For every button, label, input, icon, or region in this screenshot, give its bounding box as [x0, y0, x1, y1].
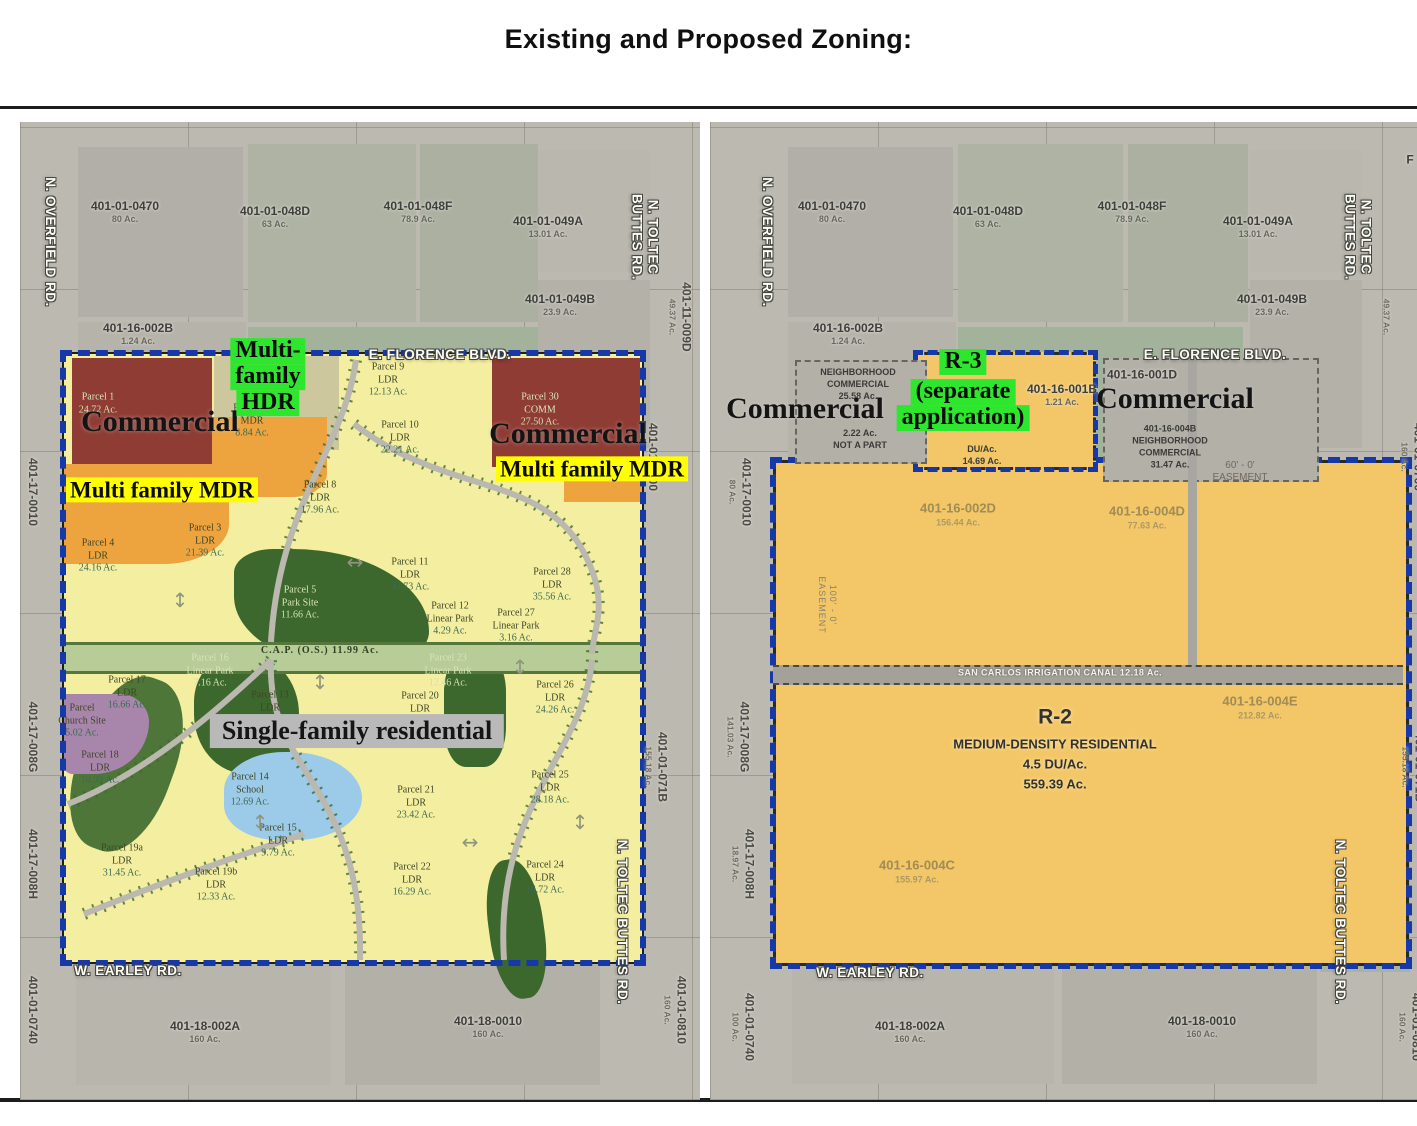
parcel-label: Parcel 9LDR12.13 Ac.: [369, 361, 408, 399]
map-labels-layer: 401-01-047080 Ac.401-01-048D63 Ac.401-01…: [20, 122, 700, 1100]
direction-arrow-icon: ↔: [347, 552, 364, 572]
parcel-label: Parcel 18LDR10.39 Ac.: [81, 749, 120, 787]
apn-label: 401-18-0010160 Ac.: [454, 1014, 522, 1040]
direction-arrow-icon: ↕: [172, 590, 189, 610]
apn-label: 401-16-002B1.24 Ac.: [103, 321, 173, 347]
parcel-label: Parcel 12Linear Park4.29 Ac.: [427, 600, 474, 638]
apn-label-vertical: 401-01-0700160 Ac.: [1399, 423, 1417, 491]
apn-label: 401-16-004E212.82 Ac.: [1222, 694, 1297, 723]
parcel-label: Parcel 23Linear Park12.46 Ac.: [425, 652, 472, 690]
apn-label-vertical: 401-17-0010: [24, 458, 40, 526]
parcel-label: Parcel 11LDR33.73 Ac.: [391, 556, 430, 594]
apn-label: 401-16-004D77.63 Ac.: [1109, 504, 1185, 533]
zoning-exhibit-page: Existing and Proposed Zoning:: [0, 0, 1417, 1126]
road-label: W. EARLEY RD.: [816, 965, 924, 981]
parcel-label: Parcel 17LDR16.66 Ac.: [108, 674, 147, 712]
apn-label: 401-16-002D156.44 Ac.: [920, 501, 996, 530]
zoning-overlay-label: Commercial: [489, 419, 647, 449]
easement-label: 100' - 0'EASEMENT: [816, 576, 838, 634]
apn-label: 401-01-047080 Ac.: [798, 199, 866, 225]
apn-label-vertical: 401-17-001080 Ac.: [727, 458, 754, 526]
existing-zoning-map: 401-01-047080 Ac.401-01-048D63 Ac.401-01…: [20, 122, 700, 1100]
apn-label: 401-01-049B23.9 Ac.: [1237, 292, 1307, 318]
page-title: Existing and Proposed Zoning:: [0, 24, 1417, 55]
road-label-vertical: N. TOLTECBUTTES RD.: [1342, 194, 1373, 280]
apn-label: 401-18-0010160 Ac.: [1168, 1014, 1236, 1040]
direction-arrow-icon: ↕: [572, 812, 589, 832]
parcel-label: Parcel 28LDR35.56 Ac.: [533, 566, 572, 604]
parcel-label: Parcel 16Linear Park7.16 Ac.: [187, 652, 234, 690]
parcel-label: Parcel 26LDR24.26 Ac.: [536, 679, 575, 717]
apn-label: 401-01-048D63 Ac.: [953, 204, 1023, 230]
apn-label-vertical: 401-17-008H: [24, 829, 40, 899]
commercial-parcel-label: 2.22 Ac.NOT A PART: [833, 427, 887, 451]
parcel-label: Parcel 14School12.69 Ac.: [231, 771, 270, 809]
zoning-overlay-label: Commercial: [1096, 384, 1254, 414]
apn-label-vertical: 401-17-008G: [24, 702, 40, 773]
highlight-yellow-label: Multi family MDR: [496, 456, 688, 481]
road-label-vertical: N. TOLTECBUTTES RD.: [629, 194, 660, 280]
map-labels-layer: 401-01-047080 Ac.401-01-048D63 Ac.401-01…: [710, 122, 1417, 1100]
parcel-label: Parcel 22LDR16.29 Ac.: [393, 861, 432, 899]
apn-label: 401-18-002A160 Ac.: [875, 1019, 945, 1045]
parcel-label: Parcel 20LDR: [401, 691, 439, 716]
apn-label: 401-16-001D: [1107, 368, 1177, 383]
highlight-green-label: R-3: [939, 349, 986, 375]
parcel-label: Parcel 10LDR22.21 Ac.: [381, 419, 420, 457]
apn-label-vertical: 401-01-0740100 Ac.: [730, 993, 757, 1061]
apn-label: 401-01-047080 Ac.: [91, 199, 159, 225]
apn-label: 401-16-001B1.21 Ac.: [1027, 382, 1097, 408]
highlight-green-label: Multi-familyHDR: [230, 338, 305, 416]
r2-zoning-label: R-2MEDIUM-DENSITY RESIDENTIAL4.5 DU/Ac.5…: [953, 702, 1156, 795]
apn-label: 401-01-049A13.01 Ac.: [1223, 214, 1293, 240]
residential-overlay-label: Single-family residential: [210, 714, 504, 748]
parcel-label: Parcel 8LDR17.96 Ac.: [301, 479, 340, 517]
apn-label: 401-16-004C155.97 Ac.: [879, 858, 955, 887]
apn-label: 401-01-049B23.9 Ac.: [525, 292, 595, 318]
road-label-vertical: N. TOLTEC BUTTES RD.: [614, 840, 630, 1005]
parcel-label: Parcel 19aLDR31.45 Ac.: [101, 842, 143, 880]
direction-arrow-icon: ↕: [252, 812, 269, 832]
parcel-label: Parcel 5Park Site11.66 Ac.: [281, 584, 319, 622]
road-label-vertical: N. TOLTEC BUTTES RD.: [1332, 840, 1348, 1005]
direction-arrow-icon: ↕: [512, 657, 529, 677]
apn-label-vertical: 401-01-0740: [24, 976, 40, 1044]
apn-label-vertical: 401-01-071B155.18 Ac.: [643, 732, 670, 802]
parcel-label: Parcel 25LDR28.18 Ac.: [531, 769, 570, 807]
apn-label: 401-18-002A160 Ac.: [170, 1019, 240, 1045]
road-label: W. EARLEY RD.: [74, 963, 182, 979]
canal-label: C.A.P. (O.S.) 11.99 Ac.: [261, 645, 379, 657]
apn-label-vertical: 401-01-0810160 Ac.: [662, 976, 689, 1044]
parcel-label: ParcelChurch Site5.02 Ac.: [58, 702, 106, 740]
apn-label-vertical: 401-01-0810160 Ac.: [1397, 993, 1417, 1061]
apn-label-vertical: 49.37 Ac.: [1380, 299, 1391, 336]
parcel-label: Parcel 3LDR21.39 Ac.: [186, 522, 225, 560]
apn-label: 401-16-002B1.24 Ac.: [813, 321, 883, 347]
canal-label: SAN CARLOS IRRIGATION CANAL 12.18 Ac.: [958, 668, 1162, 679]
commercial-parcel-label: 401-16-004BNEIGHBORHOODCOMMERCIAL31.47 A…: [1132, 423, 1208, 472]
apn-label-vertical: 401-17-008H18.97 Ac.: [730, 829, 757, 899]
parcel-label: Parcel 4LDR24.16 Ac.: [79, 537, 118, 575]
road-label: E. FLORENCE BLVD.: [1144, 347, 1287, 363]
direction-arrow-icon: ↕: [312, 672, 329, 692]
proposed-zoning-map: 401-01-047080 Ac.401-01-048D63 Ac.401-01…: [710, 122, 1417, 1100]
top-divider-line: [0, 106, 1417, 109]
highlight-green-label: (separateapplication): [897, 379, 1030, 431]
apn-label: 401-01-048F78.9 Ac.: [384, 199, 453, 225]
highlight-yellow-label: Multi family MDR: [66, 477, 258, 502]
parcel-label: Parcel 27Linear Park3.16 Ac.: [493, 607, 540, 645]
apn-label: 401-01-048D63 Ac.: [240, 204, 310, 230]
apn-label: 401-01-049A13.01 Ac.: [513, 214, 583, 240]
apn-label: 401-01-048F78.9 Ac.: [1098, 199, 1167, 225]
direction-arrow-icon: ↔: [462, 832, 479, 852]
zoning-overlay-label: Commercial: [726, 394, 884, 424]
parcel-label: Parcel 19bLDR12.33 Ac.: [195, 866, 238, 904]
road-label-vertical: N. OVERFIELD RD.: [42, 177, 58, 307]
road-label-vertical: N. OVERFIELD RD.: [759, 177, 775, 307]
apn-label-vertical: 401-17-008G141.03 Ac.: [725, 702, 752, 773]
commercial-parcel-label: DU/Ac.14.69 Ac.: [963, 443, 1002, 467]
apn-label-vertical: 401-11-009D49.37 Ac.: [667, 282, 694, 351]
apn-label-vertical: 401-01-071B155.18 Ac.: [1400, 732, 1417, 802]
parcel-label: Parcel 24LDR16.72 Ac.: [526, 859, 565, 897]
easement-label: 60' - 0'EASEMENT: [1212, 460, 1267, 484]
zoning-overlay-label: Commercial: [81, 407, 239, 437]
apn-label: F: [1406, 153, 1413, 168]
parcel-label: Parcel 21LDR23.42 Ac.: [397, 784, 436, 822]
